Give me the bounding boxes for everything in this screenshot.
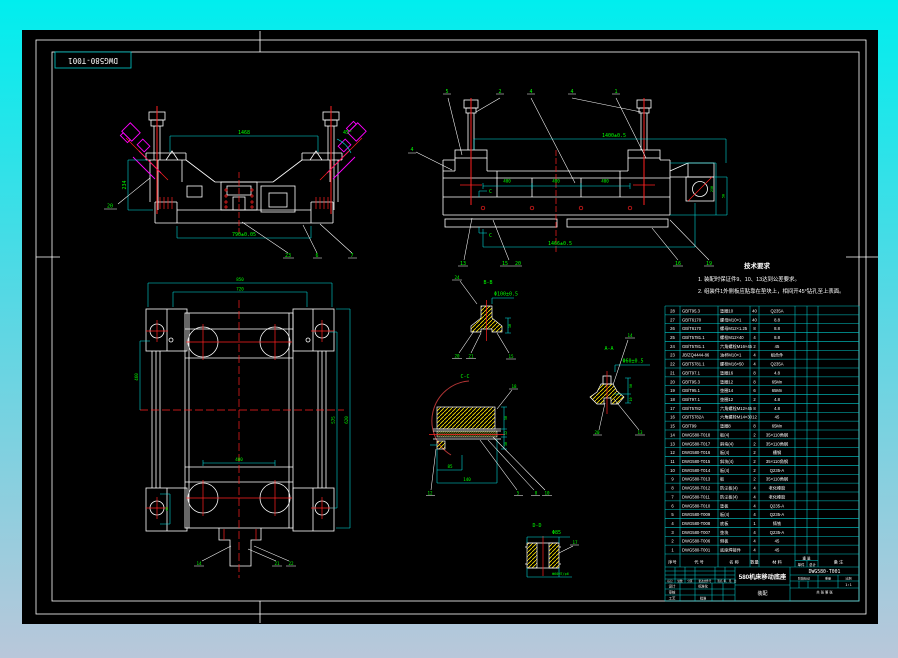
bom-cell: DWG580-T010 [682, 503, 711, 508]
part-leader-label: 4 [570, 89, 573, 95]
bom-cell: DWG580-T012 [682, 486, 711, 491]
bom-cell: GB/T97.1 [682, 397, 701, 402]
part-leader-label: 17 [572, 540, 578, 545]
bom-cell: 65Mn [772, 388, 783, 393]
bom-cell: 六角螺栓M14×30 [720, 414, 753, 421]
part-leader-label: 20 [454, 354, 460, 359]
bom-cell: 螺栓M16×50 [720, 361, 744, 368]
rev-label: 更改文件号 [699, 579, 712, 583]
bom-cell: 垫圈10 [720, 307, 734, 314]
bom-cell: 底板 [720, 520, 729, 527]
drawing-number: DWG580-T001 [809, 569, 841, 575]
sign-label: 审核 [669, 590, 676, 595]
bom-cell: 底座焊接件 [720, 547, 741, 554]
bom-cell: 18 [670, 397, 675, 402]
cc-small-block [437, 441, 445, 449]
part-leader-label: 21 [274, 561, 280, 566]
part-leader-label: 2 [498, 89, 501, 95]
bom-cell: 防尘板(4) [720, 485, 738, 492]
bom-cell: 40 [752, 317, 757, 322]
bom-cell: GB/T95.3 [682, 379, 701, 384]
dim-label: 400 [601, 179, 609, 184]
bom-cell: DWG580-T011 [682, 494, 711, 499]
part-leader-label: 14 [627, 333, 633, 338]
bom-cell: 侧板 [720, 538, 729, 545]
bom-cell: 12 [752, 415, 757, 420]
bom-cell: GB/T5781.1 [682, 344, 705, 349]
bom-cell: 35×110角钢 [766, 458, 788, 465]
bom-cell: DWG580-T009 [682, 512, 711, 517]
part-leader-label: 20 [107, 204, 113, 210]
bom-cell: 35×110角钢 [766, 440, 788, 447]
bom-cell: Q235-A [770, 512, 785, 517]
bom-header-weight-each: 单件 [798, 562, 805, 567]
bom-cell: DWG580-T001 [682, 548, 711, 553]
bom-cell: 45 [775, 548, 780, 553]
bom-cell: 24 [670, 344, 675, 349]
bom-cell: JB/ZQ4444-86 [682, 353, 710, 358]
part-leader-label: 4 [529, 89, 532, 95]
bom-cell: 35×110角钢 [766, 431, 788, 438]
bom-cell: 4.8 [774, 370, 780, 375]
bom-cell: Q235A [770, 308, 783, 313]
bom-cell: 老化橡胶 [769, 485, 786, 492]
dim-label: 40 [165, 507, 169, 511]
bom-cell: 19 [670, 388, 675, 393]
cc-hatched-block [437, 407, 495, 429]
part-leader-label: 7 [350, 253, 353, 259]
dim-label: 400 [235, 457, 243, 462]
bom-cell: 组合件 [771, 352, 784, 359]
bom-cell: 板(4) [720, 467, 730, 474]
dim-label: 12 [504, 431, 508, 435]
bom-header-code: 代 号 [694, 559, 704, 566]
bom-cell: Q235-A [770, 530, 785, 535]
bom-cell: DWG580-T018 [682, 432, 711, 437]
dim-label: 50 [629, 384, 633, 388]
bom-header-material: 材 料 [772, 559, 782, 566]
angle-dim-label: 45° [343, 130, 352, 136]
dd-bushing-left [527, 543, 537, 568]
bom-cell: DWG580-T008 [682, 521, 711, 526]
bom-cell: 槽钢 [773, 449, 781, 456]
part-leader-label: 16 [675, 261, 681, 267]
section-title: C-C [460, 374, 469, 380]
dim-label: 1468 [238, 130, 250, 136]
part-leader-label: 23 [285, 253, 291, 259]
bom-cell: 老化橡胶 [769, 493, 786, 500]
bom-cell: DWG580-T013 [682, 477, 711, 482]
section-title: D-D [532, 523, 541, 529]
part-leader-label: 1 [614, 89, 617, 95]
scale-value: 1:1 [845, 583, 852, 587]
bom-cell: 防尘板(4) [720, 493, 738, 500]
bom-cell: 8.8 [774, 317, 780, 322]
bom-cell: 14 [670, 432, 675, 437]
dim-label: 460 [134, 373, 139, 381]
bom-cell: 23 [670, 353, 675, 358]
bom-header-no: 序号 [668, 559, 676, 566]
stage-label: 阶段标记 [798, 576, 810, 581]
dim-label: 720 [236, 287, 244, 292]
bom-cell: DWG580-T016 [682, 450, 711, 455]
bom-cell: 六角螺栓M12×45 [720, 405, 753, 412]
corner-label: DWG580-T001 [68, 56, 118, 65]
bom-cell: 8.8 [774, 335, 780, 340]
bom-cell: 65Mn [772, 424, 783, 429]
dd-bushing-right [549, 543, 559, 568]
scale-label: 比例 [845, 576, 851, 581]
bom-cell: GB/T6170 [682, 317, 702, 322]
bom-cell: 螺母M12×1.25 [720, 325, 748, 332]
drawing-subtitle: 装配 [757, 590, 767, 597]
bom-cell: 35×110角钢 [766, 476, 788, 483]
dim-label: 400 [552, 179, 560, 184]
section-title: A-A [604, 346, 613, 352]
dim-label: 1400±0.5 [602, 133, 626, 139]
part-leader-label: 12 [427, 491, 433, 496]
cad-drawing: DWG580-T001 [0, 0, 898, 658]
bom-cell: 垫圈16 [720, 369, 734, 376]
dim-label: 50 [504, 416, 508, 420]
bom-cell: 28 [670, 308, 675, 313]
bom-cell: 27 [670, 317, 675, 322]
sign-label: 设计 [669, 584, 676, 589]
part-leader-label: 13 [637, 430, 643, 435]
section-mark-label: C [489, 233, 492, 239]
bom-cell: GB/T6170 [682, 326, 702, 331]
dim-label: 250 [710, 186, 714, 192]
bom-cell: 45 [775, 415, 780, 420]
revision-row-labels: 标记 处数 分区 更改文件号 签名 年、月、日 [667, 579, 736, 583]
bom-header-qty: 数量 [750, 559, 758, 566]
bom-cell: DWG580-T015 [682, 459, 711, 464]
part-leader-label: 5 [445, 89, 448, 95]
dim-label: 234 [122, 180, 128, 189]
bom-cell: 21 [670, 370, 675, 375]
rev-label: 年、月、日 [724, 579, 737, 583]
part-leader-label: 6 [315, 253, 318, 259]
dim-label: 790±0.05 [232, 232, 256, 238]
weight-label: 重量 [825, 576, 831, 581]
bom-cell: 26 [670, 326, 675, 331]
bom-cell: GB/T5782 [682, 406, 702, 411]
section-title: B-B [483, 280, 492, 286]
bom-cell: 13 [670, 441, 675, 446]
bom-cell: 15 [670, 424, 675, 429]
rev-label: 分区 [687, 579, 693, 583]
bom-cell: 板(4) [720, 511, 730, 518]
tech-note-line: 1. 装配时保证件9、10、13达到公差要求。 [698, 275, 800, 283]
bom-cell: GB/T5781.1 [682, 335, 705, 340]
bom-cell: 4.8 [774, 406, 780, 411]
rev-label: 签名 [717, 579, 723, 583]
bom-cell: 垫圈12 [720, 396, 734, 403]
dim-label: Φ85 [552, 530, 561, 536]
dim-label: 10 [629, 397, 633, 401]
bom-cell: Q235-A [770, 503, 785, 508]
part-leader-label: 20 [594, 430, 600, 435]
bom-header-weight-total: 总计 [809, 562, 816, 567]
bom-cell: DWG580-T006 [682, 539, 711, 544]
bom-header-weight: 重 量 [802, 556, 811, 561]
cad-viewer-window: DWG580-T001 [0, 0, 898, 658]
dim-label: Φ100±0.5 [494, 292, 518, 298]
part-leader-label: 10 [544, 491, 550, 496]
dim-label: 1466±0.5 [548, 241, 572, 247]
bom-cell: 17 [670, 406, 675, 411]
drawing-title: 580机床移动底座 [739, 573, 787, 581]
bom-cell: GB/T5781.1 [682, 362, 705, 367]
part-leader-label: 20 [515, 261, 521, 267]
dim-label: 400 [503, 179, 511, 184]
bom-cell: DWG580-T007 [682, 530, 711, 535]
bom-cell: GB/T95.3 [682, 308, 701, 313]
section-mark-label: C [489, 189, 492, 195]
corner-label-box: DWG580-T001 [55, 52, 131, 68]
bom-cell: 垫圈14 [720, 387, 734, 394]
bom-cell: 六角螺栓M16×45 [720, 343, 753, 350]
bom-cell: 11 [670, 459, 675, 464]
rev-label: 标记 [667, 579, 673, 583]
bom-cell: 8.8 [774, 326, 780, 331]
bom-cell: 65Mn [772, 379, 783, 384]
dim-label: 50 [722, 194, 726, 198]
rev-label: 处数 [677, 579, 683, 583]
part-leader-label: 13 [460, 261, 466, 267]
bom-cell: 垫圈8 [720, 423, 731, 430]
bom-cell: 螺栓M12×40 [720, 334, 744, 341]
bom-cell: 板(4) [720, 431, 730, 438]
bom-cell: 20 [670, 379, 675, 384]
bom-cell: 16 [670, 415, 675, 420]
part-leader-label: 21 [468, 354, 474, 359]
dim-label: Φ60±0.5 [622, 359, 643, 365]
bom-cell: 10 [670, 468, 675, 473]
part-leader-label: 15 [508, 354, 514, 359]
dim-label: 30 [504, 442, 508, 446]
bom-cell: DWG580-T017 [682, 441, 711, 446]
sheet-info: 共 张 第 张 [816, 590, 833, 595]
cc-liner-strip [437, 431, 497, 437]
bom-cell: 垫块 [720, 529, 729, 536]
part-leader-label: 24 [454, 275, 460, 280]
bom-cell: 45 [775, 344, 780, 349]
bom-cell: 4.8 [774, 397, 780, 402]
bom-cell: DWG580-T014 [682, 468, 711, 473]
sign-label: 标准化 [698, 584, 708, 589]
bom-cell: 垫板 [720, 502, 729, 509]
dim-label: 140 [463, 477, 471, 482]
part-leader-label: 22 [288, 561, 294, 566]
bom-cell: 40 [752, 308, 757, 313]
bom-cell: GB/T5782A [682, 415, 704, 420]
bom-cell: 45 [775, 539, 780, 544]
part-leader-label: 4 [410, 147, 413, 153]
bom-cell: Q235-A [770, 468, 785, 473]
part-leader-label: 14 [196, 561, 202, 566]
bom-cell: 垫圈12 [720, 378, 734, 385]
bom-cell: 油杯M10×1 [720, 352, 742, 359]
bom-cell: 25 [670, 335, 675, 340]
bom-cell: GB/T99 [682, 424, 697, 429]
bom-cell: 22 [670, 362, 675, 367]
bom-cell: 12 [670, 450, 675, 455]
bom-cell: GB/T95.1 [682, 388, 701, 393]
bom-header-name: 名 称 [729, 559, 739, 566]
part-leader-label: 18 [511, 384, 517, 389]
dim-label: 620 [344, 416, 349, 424]
tech-notes-title: 技术要求 [744, 261, 771, 270]
dim-label: 850 [236, 277, 244, 282]
bom-cell: Q235A [770, 362, 783, 367]
sign-label: 工艺 [669, 596, 676, 601]
bom-cell: 螺母M10×1 [720, 316, 742, 323]
tech-note-line: 2. 组装件1外侧板应贴靠在垫块上，相间开45°钻孔至上表面。 [698, 287, 845, 295]
part-leader-label: 19 [706, 261, 712, 267]
bom-cell: 铸铁 [773, 520, 782, 527]
dim-label: 85 [447, 464, 453, 469]
bom-cell: GB/T97.1 [682, 370, 701, 375]
part-leader-label: 15 [502, 261, 508, 267]
bom-cell: 斜块(4) [720, 440, 734, 447]
bom-cell: 斜块(4) [720, 458, 734, 465]
bom-header-remark: 备 注 [834, 559, 844, 566]
drawing-canvas [22, 30, 878, 624]
bom-cell: 板(4) [720, 449, 730, 456]
dim-label: 575 [331, 416, 336, 424]
sign-label: 批准 [700, 596, 707, 601]
dim-label: 10 [508, 324, 512, 328]
dim-label: Φ60H7/p6 [552, 572, 569, 576]
